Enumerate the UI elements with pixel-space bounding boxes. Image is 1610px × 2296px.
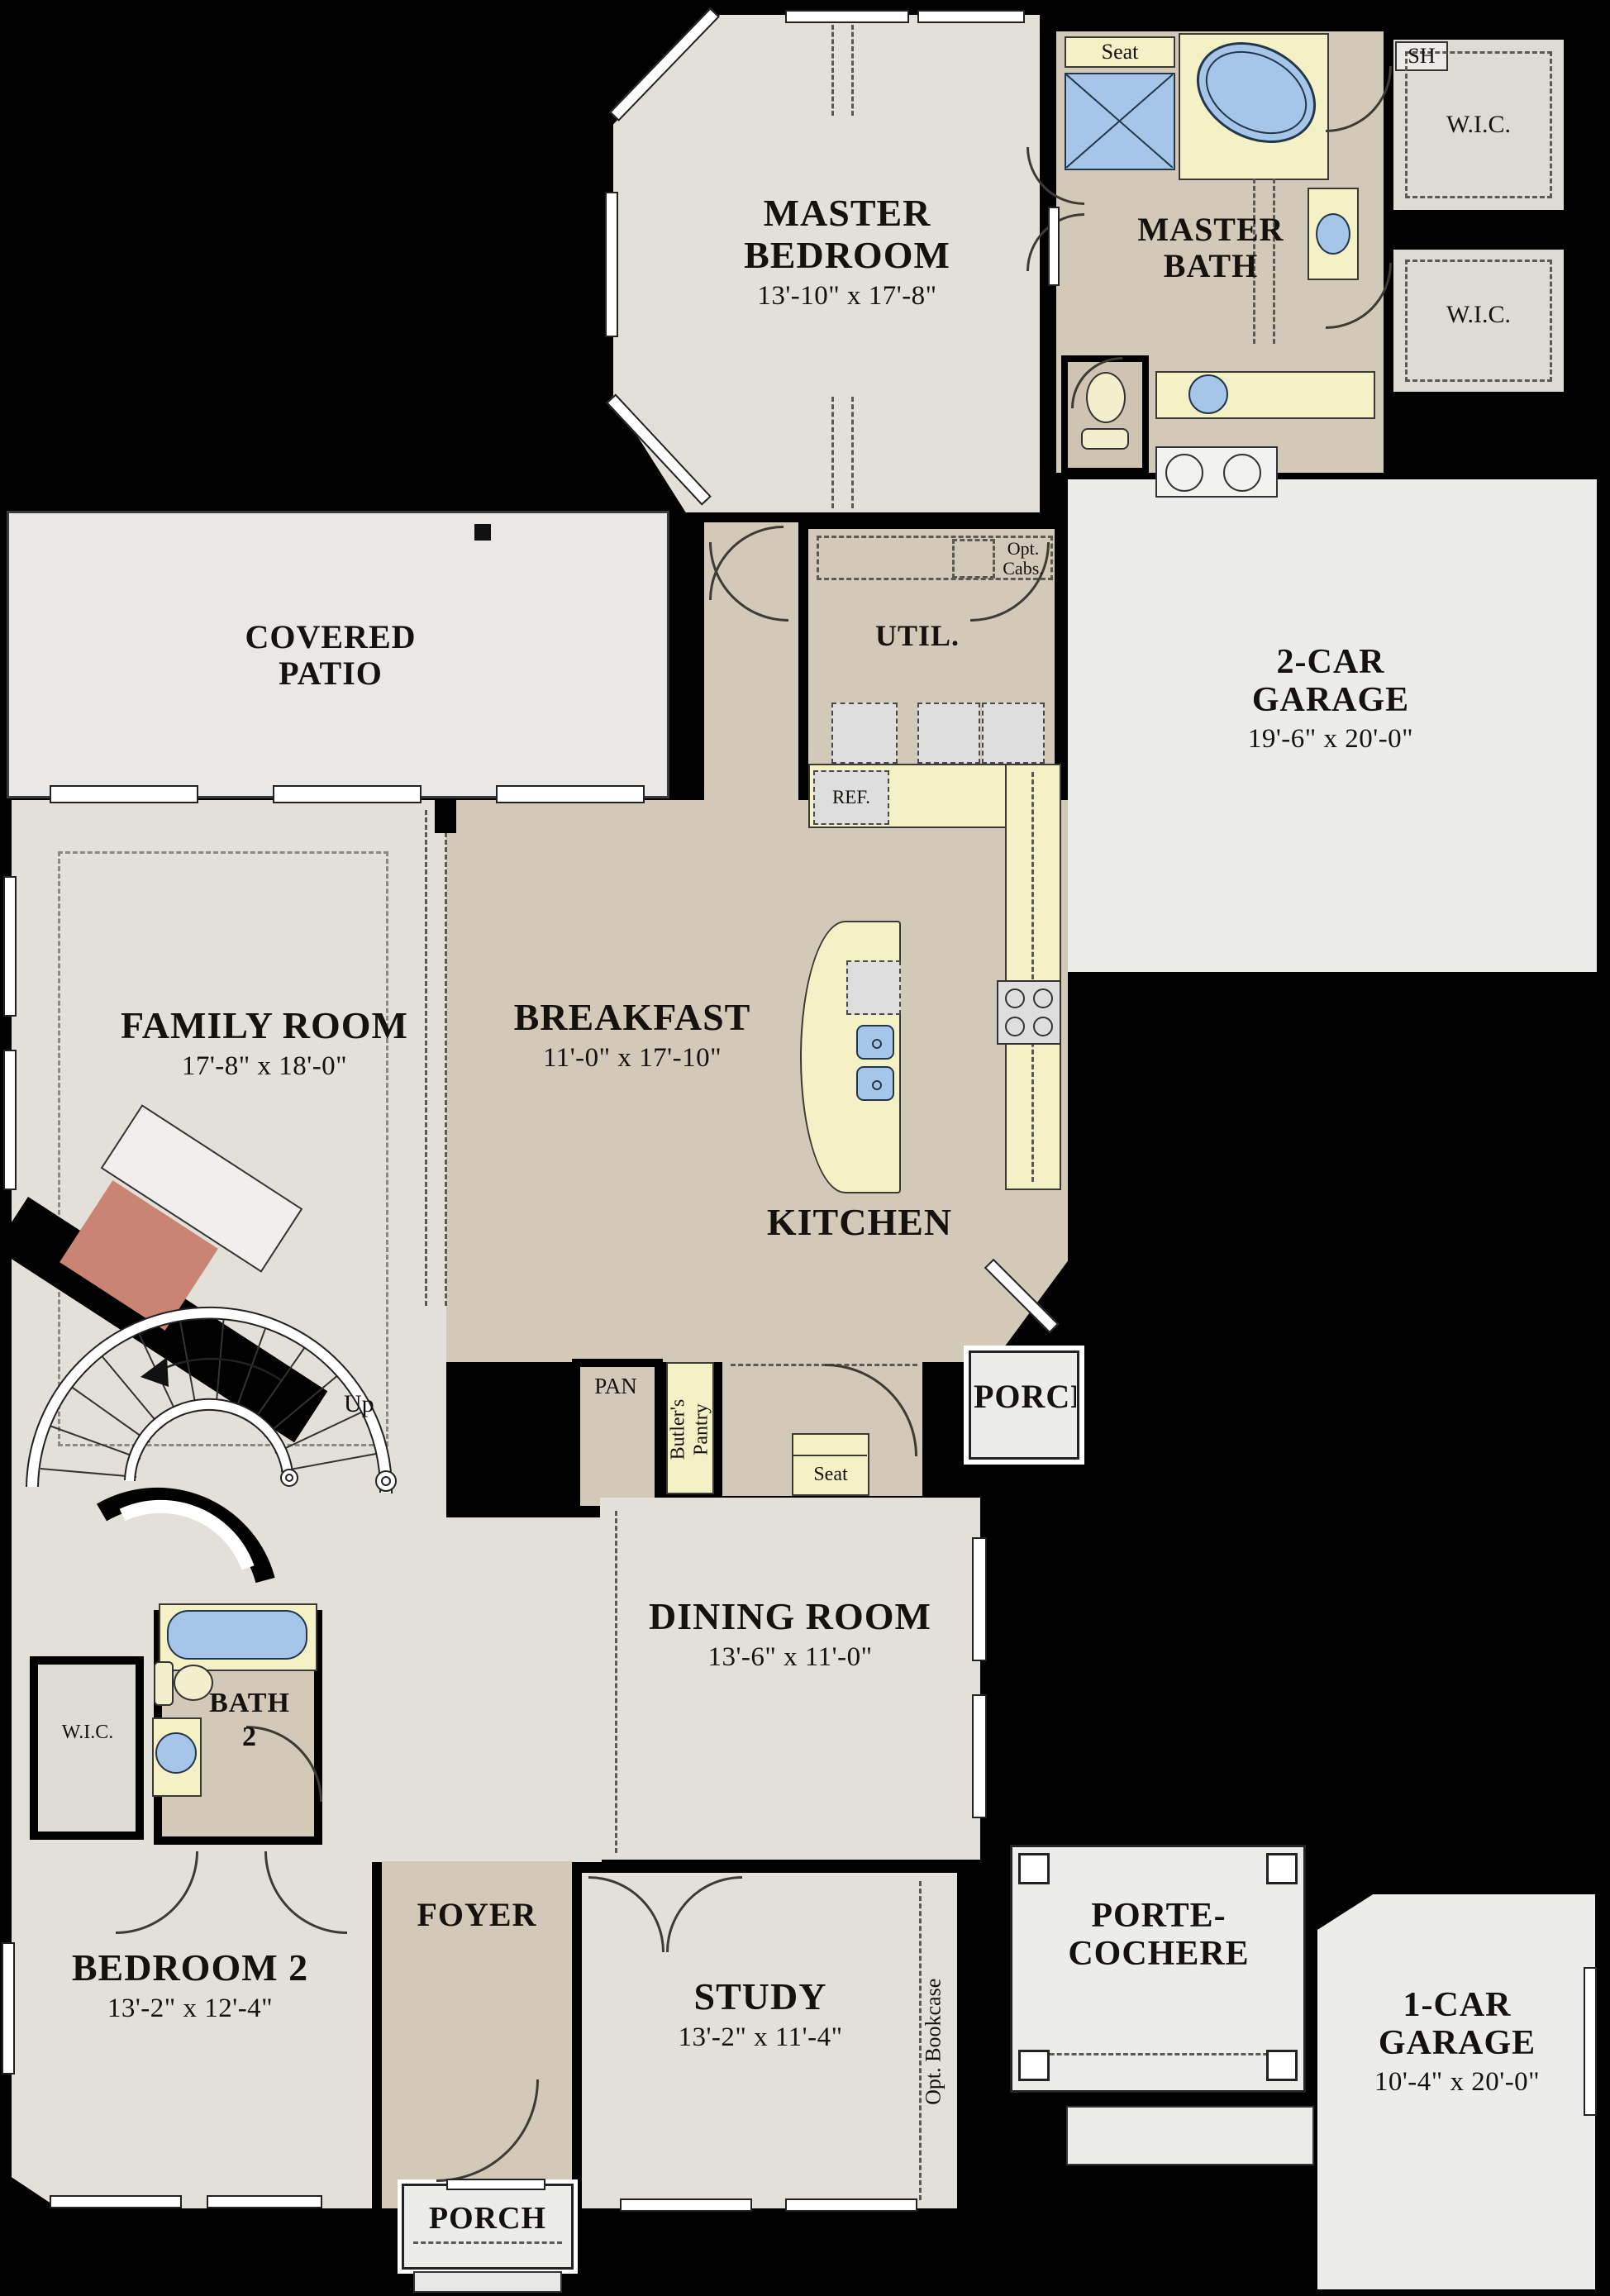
room-porte-cochere (1010, 1845, 1306, 2093)
window (785, 10, 909, 23)
refrigerator (813, 770, 889, 825)
room-pantry (572, 1359, 663, 1514)
patio-window (496, 785, 645, 803)
porte-post (1018, 2050, 1050, 2081)
window (1584, 1967, 1597, 2116)
spiral-staircase: Up (15, 1265, 403, 1595)
room-divider (425, 810, 427, 1306)
window (3, 876, 17, 1017)
window (207, 2195, 322, 2208)
window (785, 2198, 917, 2212)
wic-shelving (1405, 51, 1552, 198)
porte-cochere-line (1035, 2053, 1283, 2055)
bath2-sink-icon (155, 1732, 197, 1774)
cooktop (997, 980, 1061, 1045)
window (50, 2195, 182, 2208)
ceiling-line (831, 25, 834, 116)
room-master-bedroom (613, 15, 1040, 512)
burner-icon (1005, 1017, 1025, 1036)
water-heater-icon (1165, 454, 1203, 492)
porch-front-step (413, 2271, 562, 2293)
porch-front-line (413, 2241, 562, 2244)
window (1048, 207, 1060, 286)
patio-post (474, 524, 491, 541)
window (972, 1537, 987, 1661)
stairs-up-label: Up (344, 1390, 374, 1417)
dryer-icon (917, 703, 980, 764)
ceiling-line (1273, 179, 1275, 344)
window (605, 192, 618, 337)
hall-lower (446, 1517, 602, 1862)
burner-icon (1033, 988, 1053, 1008)
ceiling-line (615, 1511, 617, 1853)
room-dining (600, 1498, 980, 1860)
room-garage-1car (1317, 1894, 1595, 2289)
burner-icon (1005, 988, 1025, 1008)
room-covered-patio (7, 511, 669, 798)
window (2, 1942, 15, 2074)
bath2-toilet-tank (154, 1661, 174, 1706)
floor-plan: Up MASTER BEDROOM (0, 0, 1610, 2296)
dishwasher (846, 960, 901, 1015)
island-sink-icon (856, 1066, 894, 1101)
front-door-opening (446, 2179, 545, 2190)
patio-window (50, 785, 198, 803)
ceiling-line (831, 397, 834, 508)
dryer-icon (982, 703, 1045, 764)
porte-post (1018, 1853, 1050, 1884)
ceiling-line (1253, 179, 1255, 344)
vanity-sink-icon (1188, 374, 1228, 414)
ceiling-line (851, 397, 854, 508)
opt-bookcase-line (919, 1881, 922, 2200)
shower-seat (1065, 36, 1175, 68)
room-porch-front (402, 2184, 574, 2270)
toilet-tank (1081, 428, 1129, 450)
room-breakfast-kitchen (446, 800, 1068, 1362)
porte-post (1266, 2050, 1298, 2081)
counter-line (1031, 772, 1034, 1182)
ceiling-line (851, 25, 854, 116)
window (3, 1050, 17, 1190)
porte-cochere-apron (1066, 2106, 1314, 2165)
wic-shelving (1405, 260, 1552, 382)
window (972, 1694, 987, 1818)
hall-sink-icon (1316, 213, 1350, 255)
island-sink-icon (856, 1025, 894, 1060)
butlers-pantry-counter (666, 1362, 714, 1494)
washer-icon (831, 703, 898, 764)
room-garage-2car (1068, 479, 1597, 972)
patio-window (273, 785, 422, 803)
window (620, 2198, 752, 2212)
burner-icon (1033, 1017, 1053, 1036)
water-heaters (1155, 446, 1278, 498)
room-wic-bed2 (30, 1656, 144, 1840)
room-divider (445, 810, 447, 1306)
water-heater-icon (1223, 454, 1261, 492)
opening-line (731, 1364, 917, 1366)
wall-stub (435, 800, 456, 833)
bath2-toilet-icon (174, 1665, 213, 1701)
porte-post (1266, 1853, 1298, 1884)
room-porch-side (969, 1350, 1079, 1460)
bath2-tub (167, 1610, 307, 1660)
window (917, 10, 1025, 23)
